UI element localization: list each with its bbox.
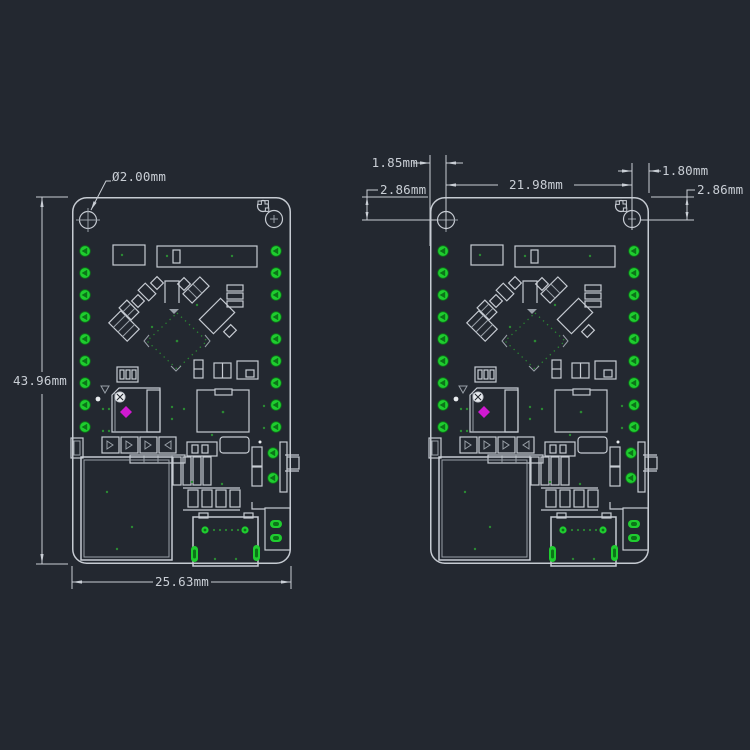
board-view-left: [71, 198, 299, 566]
dim-label-hole-left-offset: 1.85mm: [372, 155, 418, 170]
dim-label-hole-top-offset-left: 2.86mm: [380, 182, 426, 197]
dim-label-hole-right-offset: 1.80mm: [662, 163, 708, 178]
dim-label-board-width: 25.63mm: [155, 574, 209, 589]
dimensions-right-view: 1.85mm 21.98mm 1.80mm 2.86mm 2.86mm: [362, 155, 743, 246]
dim-label-board-height: 43.96mm: [13, 373, 67, 388]
board-view-right: [429, 198, 657, 566]
dim-label-hole-diameter: Ø2.00mm: [112, 169, 166, 184]
cad-viewport: Ø2.00mm 43.96mm 25.63mm 1.85mm 21.98mm: [0, 0, 750, 750]
dim-label-hole-spacing: 21.98mm: [509, 177, 563, 192]
cad-drawing: Ø2.00mm 43.96mm 25.63mm 1.85mm 21.98mm: [0, 0, 750, 750]
dim-label-hole-top-offset-right: 2.86mm: [697, 182, 743, 197]
